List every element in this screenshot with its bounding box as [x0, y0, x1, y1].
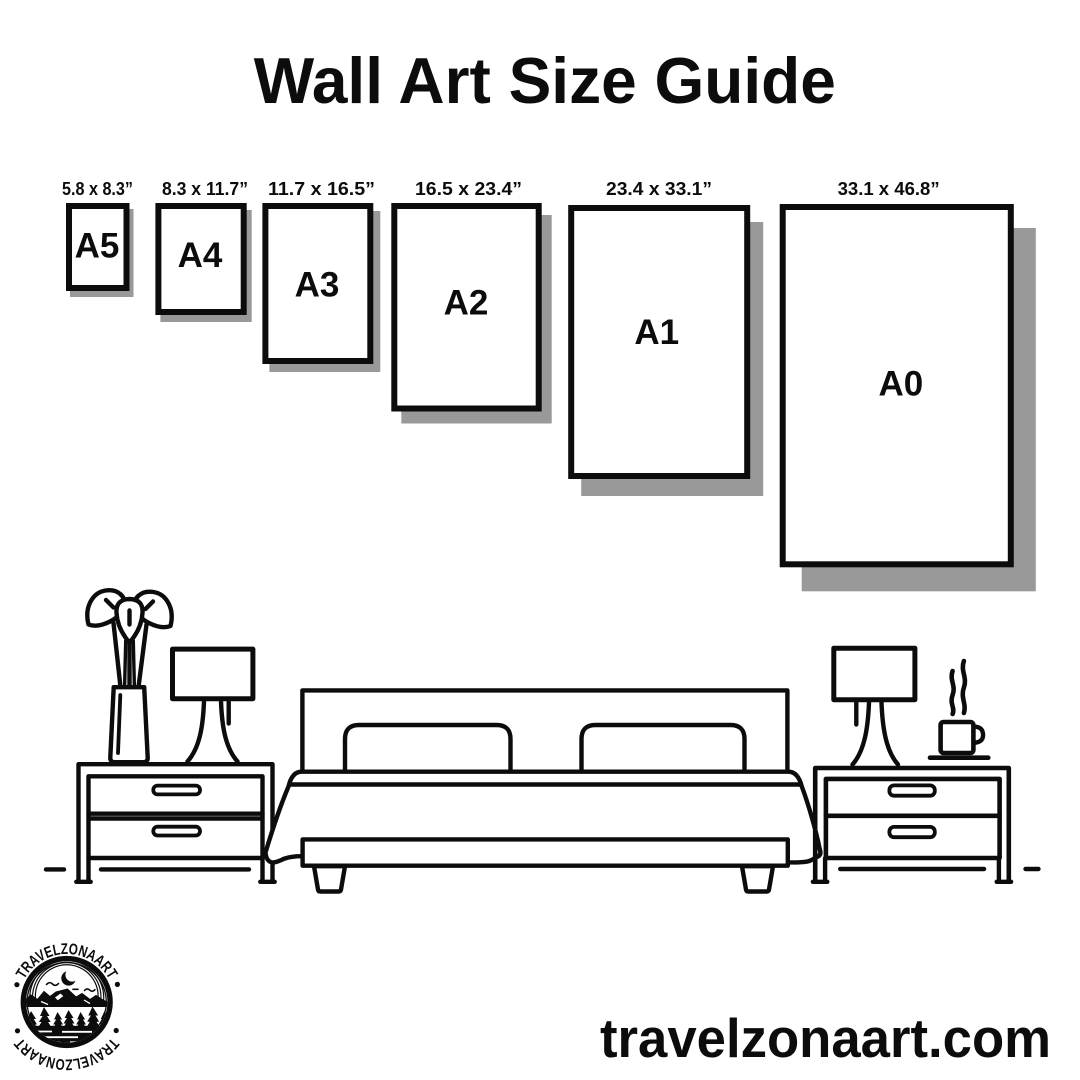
svg-text:travelzonaart.com: travelzonaart.com	[600, 1008, 1051, 1069]
svg-text:A0: A0	[879, 365, 924, 404]
svg-text:A1: A1	[634, 313, 679, 352]
svg-text:A5: A5	[75, 227, 120, 266]
svg-text:A4: A4	[178, 236, 223, 275]
svg-text:23.4 x 33.1”: 23.4 x 33.1”	[606, 178, 712, 199]
svg-text:A2: A2	[444, 284, 489, 323]
svg-text:8.3 x 11.7”: 8.3 x 11.7”	[162, 178, 248, 199]
svg-text:11.7 x 16.5”: 11.7 x 16.5”	[268, 178, 375, 199]
svg-text:A3: A3	[295, 266, 340, 305]
svg-text:16.5 x 23.4”: 16.5 x 23.4”	[415, 178, 522, 199]
svg-text:5.8 x 8.3”: 5.8 x 8.3”	[62, 178, 133, 199]
svg-text:Wall Art Size Guide: Wall Art Size Guide	[254, 44, 836, 117]
svg-text:33.1 x 46.8”: 33.1 x 46.8”	[838, 178, 940, 199]
